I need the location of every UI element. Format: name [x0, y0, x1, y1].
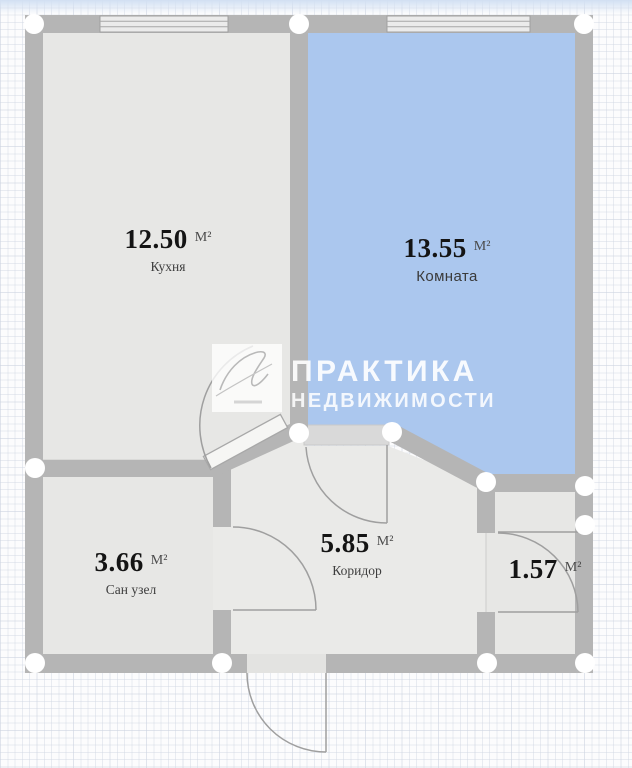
area-unit: М²: [195, 230, 212, 245]
joint-top-left: [24, 14, 44, 34]
floor-plan-drawing: [0, 0, 632, 768]
wall-kitchen-bathroom: [25, 460, 213, 477]
area-line: 3.66М²: [51, 549, 211, 576]
room-label-storage: 1.57М²: [493, 556, 597, 583]
wall-left: [25, 15, 43, 673]
area-unit: М²: [151, 553, 168, 568]
room-label-living-room: 13.55М² Комната: [367, 235, 527, 284]
area-value: 12.50: [125, 224, 188, 254]
wall-bottom-right-segment: [326, 654, 593, 673]
floor-plan-page: { "plan": { "watermark": { "line1": "ПРА…: [0, 0, 632, 768]
room-name: Коридор: [277, 564, 437, 578]
area-unit: М²: [377, 534, 394, 549]
entrance-door-arc: [247, 673, 326, 752]
joint-divider-end: [289, 423, 309, 443]
area-line: 13.55М²: [367, 235, 527, 262]
joint-left-middle: [25, 458, 45, 478]
living-room-doorway-fill: [304, 425, 389, 445]
area-unit: М²: [474, 239, 491, 254]
kitchen-window: [100, 16, 228, 32]
joint-bottom-left: [25, 653, 45, 673]
room-window: [387, 16, 530, 32]
joint-bottom-bathroom: [212, 653, 232, 673]
room-name: Комната: [367, 269, 527, 284]
joint-chamfer-bottom: [476, 472, 496, 492]
room-name: Кухня: [88, 260, 248, 274]
joint-bottom-right: [575, 653, 595, 673]
area-line: 1.57М²: [493, 556, 597, 583]
area-value: 1.57: [509, 554, 558, 584]
joint-right-upper: [575, 476, 595, 496]
joint-top-middle: [289, 14, 309, 34]
entrance-doorway-fill: [247, 654, 326, 673]
area-line: 5.85М²: [277, 530, 437, 557]
area-value: 3.66: [95, 547, 144, 577]
area-line: 12.50М²: [88, 226, 248, 253]
room-label-corridor: 5.85М² Коридор: [277, 530, 437, 578]
joint-top-right: [574, 14, 594, 34]
joint-right-lower: [575, 515, 595, 535]
area-value: 5.85: [321, 528, 370, 558]
joint-doorway-chamfer: [382, 422, 402, 442]
room-label-kitchen: 12.50М² Кухня: [88, 226, 248, 274]
joint-bottom-storage: [477, 653, 497, 673]
area-unit: М²: [565, 560, 582, 575]
area-value: 13.55: [404, 233, 467, 263]
room-label-bathroom: 3.66М² Сан узел: [51, 549, 211, 597]
wall-kitchen-room-divider: [290, 15, 308, 433]
room-name: Сан узел: [51, 583, 211, 597]
